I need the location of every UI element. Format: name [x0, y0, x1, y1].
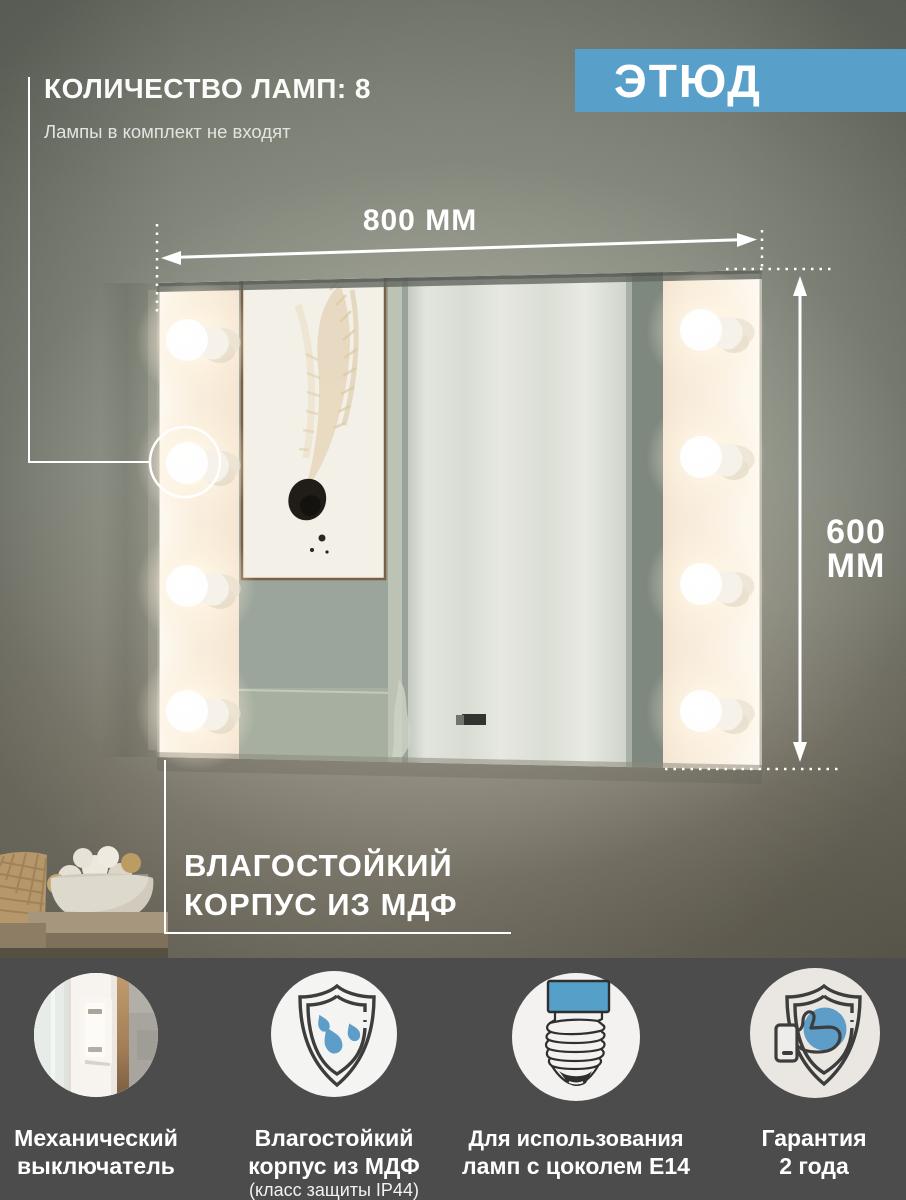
svg-text:корпус из МДФ: корпус из МДФ	[248, 1153, 419, 1179]
svg-text:2 года: 2 года	[779, 1153, 849, 1179]
svg-text:КОЛИЧЕСТВО ЛАМП: 8: КОЛИЧЕСТВО ЛАМП: 8	[44, 73, 371, 104]
svg-text:Гарантия: Гарантия	[761, 1125, 866, 1151]
svg-text:Влагостойкий: Влагостойкий	[255, 1125, 414, 1151]
svg-text:ВЛАГОСТОЙКИЙ: ВЛАГОСТОЙКИЙ	[184, 847, 453, 883]
svg-text:Лампы в комплект не входят: Лампы в комплект не входят	[44, 121, 291, 142]
svg-text:ЭТЮД: ЭТЮД	[614, 55, 762, 107]
svg-text:800 ММ: 800 ММ	[363, 204, 477, 237]
svg-text:(класс защиты IP44): (класс защиты IP44)	[249, 1180, 419, 1200]
svg-text:КОРПУС ИЗ МДФ: КОРПУС ИЗ МДФ	[184, 887, 458, 922]
svg-text:Механический: Механический	[14, 1125, 178, 1151]
svg-text:600: 600	[826, 513, 886, 551]
svg-text:выключатель: выключатель	[17, 1153, 175, 1179]
svg-text:ММ: ММ	[827, 547, 886, 585]
svg-text:ламп с цоколем Е14: ламп с цоколем Е14	[462, 1153, 690, 1179]
svg-text:Для использования: Для использования	[469, 1126, 684, 1151]
